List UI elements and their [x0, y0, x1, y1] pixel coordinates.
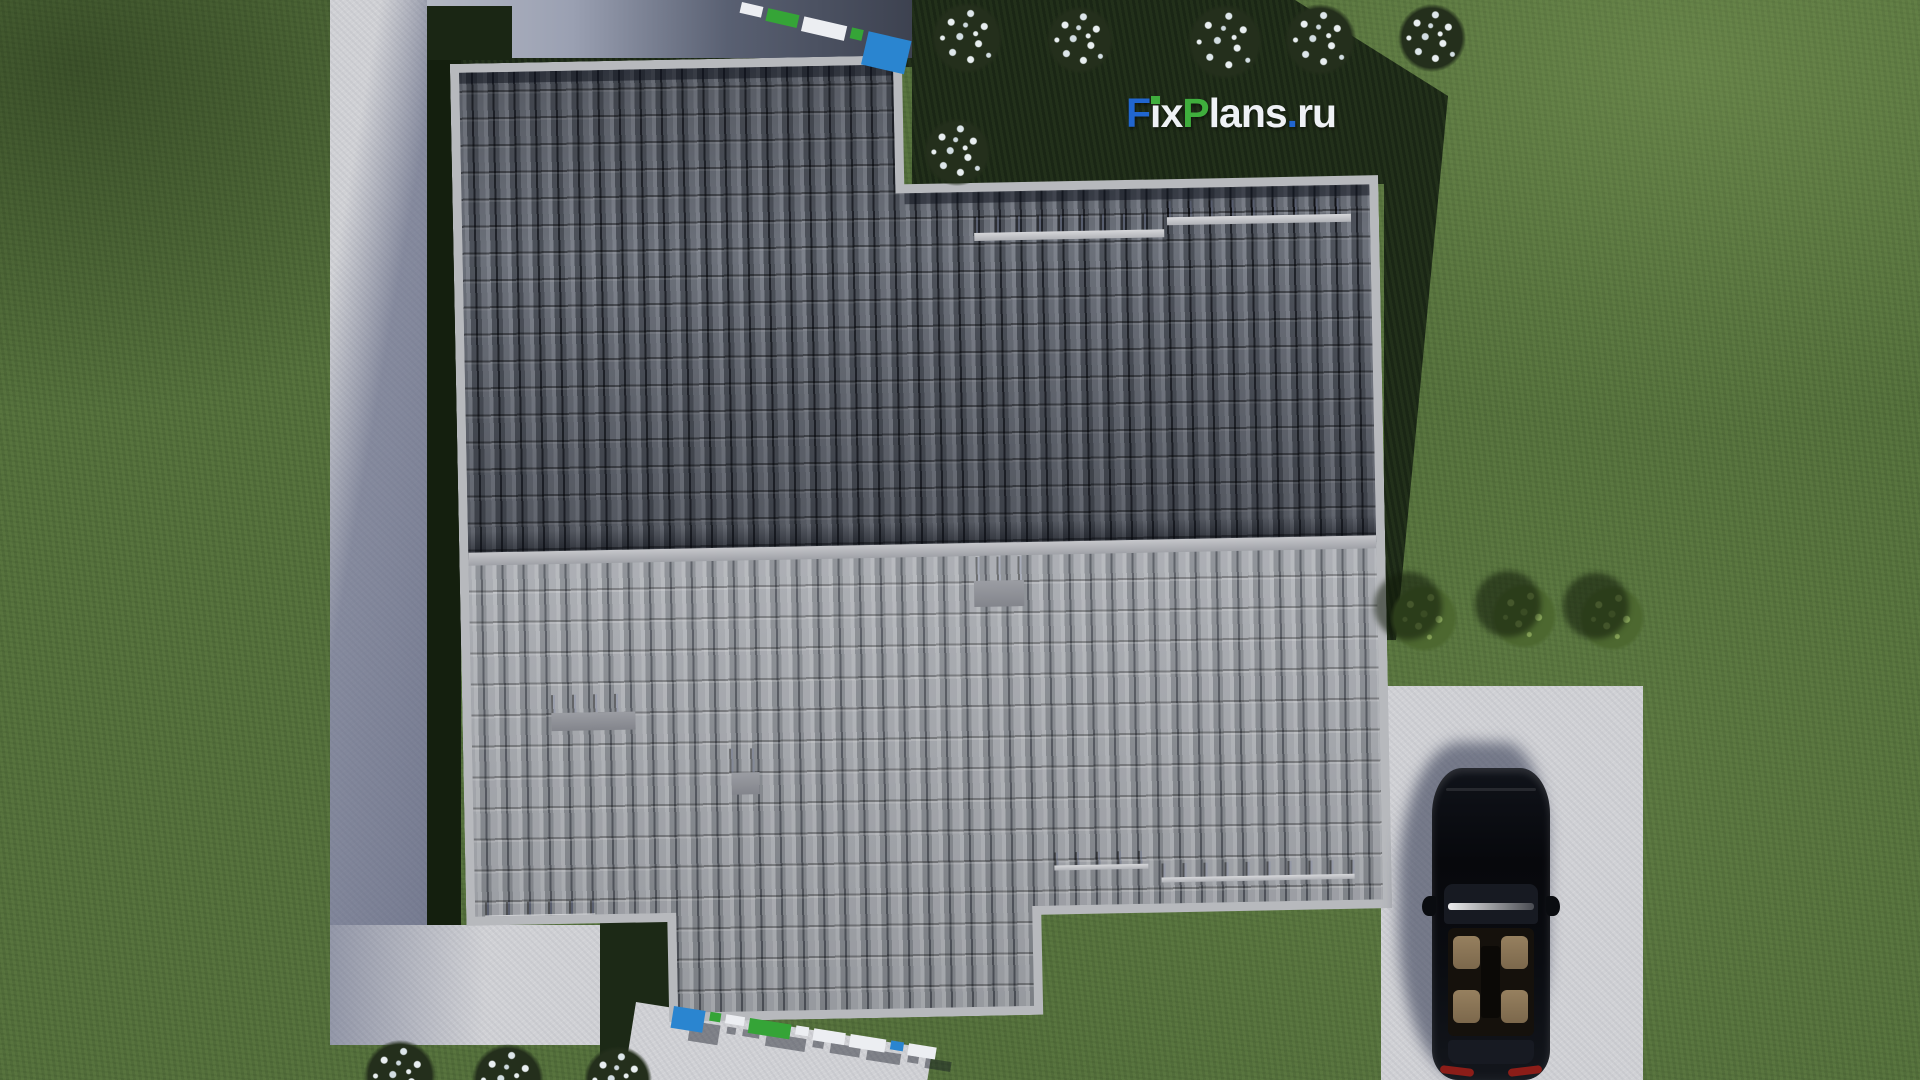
left-walkway — [330, 0, 427, 1045]
car-center-console — [1481, 946, 1500, 1018]
car-mirror-right — [1546, 896, 1560, 916]
car-seat — [1453, 990, 1480, 1023]
logo3d-block — [850, 27, 864, 40]
watermark-segment-i: i — [1150, 90, 1160, 137]
vent-pipe — [729, 748, 765, 773]
watermark-segment: F — [1126, 90, 1150, 136]
car-seat — [1501, 936, 1528, 969]
green-bush — [1579, 585, 1645, 651]
watermark-segment: ru — [1297, 90, 1336, 136]
flower-bush — [364, 1040, 436, 1080]
roof-lower-slope — [459, 542, 1394, 1026]
car-windshield — [1444, 884, 1538, 924]
house-roof — [450, 46, 1394, 1026]
car-mirror-left — [1422, 896, 1436, 916]
flower-bush — [1187, 4, 1263, 80]
aerial-site-render: FixPlans.ru — [0, 0, 1920, 1080]
hedge-square — [424, 6, 512, 60]
car-seat — [1501, 990, 1528, 1023]
car-cabin — [1448, 928, 1534, 1036]
logo3d-block — [671, 1006, 706, 1033]
car-hood-line — [1446, 788, 1536, 791]
watermark-segment: lans — [1209, 90, 1287, 136]
car-rear-window — [1448, 1040, 1534, 1064]
logo3d-block — [812, 1028, 845, 1045]
watermark-segment: P — [1182, 90, 1208, 136]
watermark-segment: x — [1160, 90, 1182, 136]
logo3d-block — [795, 1025, 809, 1036]
vent-pipe-base — [732, 772, 760, 795]
logo3d-block — [907, 1043, 937, 1059]
logo3d-block — [849, 1034, 887, 1052]
roof-vent-base — [974, 580, 1024, 607]
logo3d-block — [709, 1012, 721, 1023]
car — [1432, 768, 1550, 1080]
car-seat — [1453, 936, 1480, 969]
roof-tiles — [450, 46, 1394, 1026]
green-bush — [1390, 584, 1458, 652]
flower-bush — [1284, 4, 1356, 76]
logo3d-block — [748, 1018, 792, 1039]
flower-bush — [1398, 4, 1466, 72]
flower-bush — [923, 118, 991, 186]
chimney-strip — [551, 694, 635, 714]
flower-bush — [931, 2, 1003, 74]
chimney-base — [551, 712, 635, 732]
flower-bush — [472, 1044, 544, 1080]
watermark: FixPlans.ru — [1126, 90, 1336, 137]
green-bush — [1491, 583, 1557, 649]
flower-bush — [1046, 6, 1114, 74]
logo3d-block — [890, 1040, 904, 1051]
logo3d-block — [725, 1014, 745, 1026]
watermark-segment: . — [1287, 90, 1297, 136]
roof-vent — [975, 556, 1021, 581]
